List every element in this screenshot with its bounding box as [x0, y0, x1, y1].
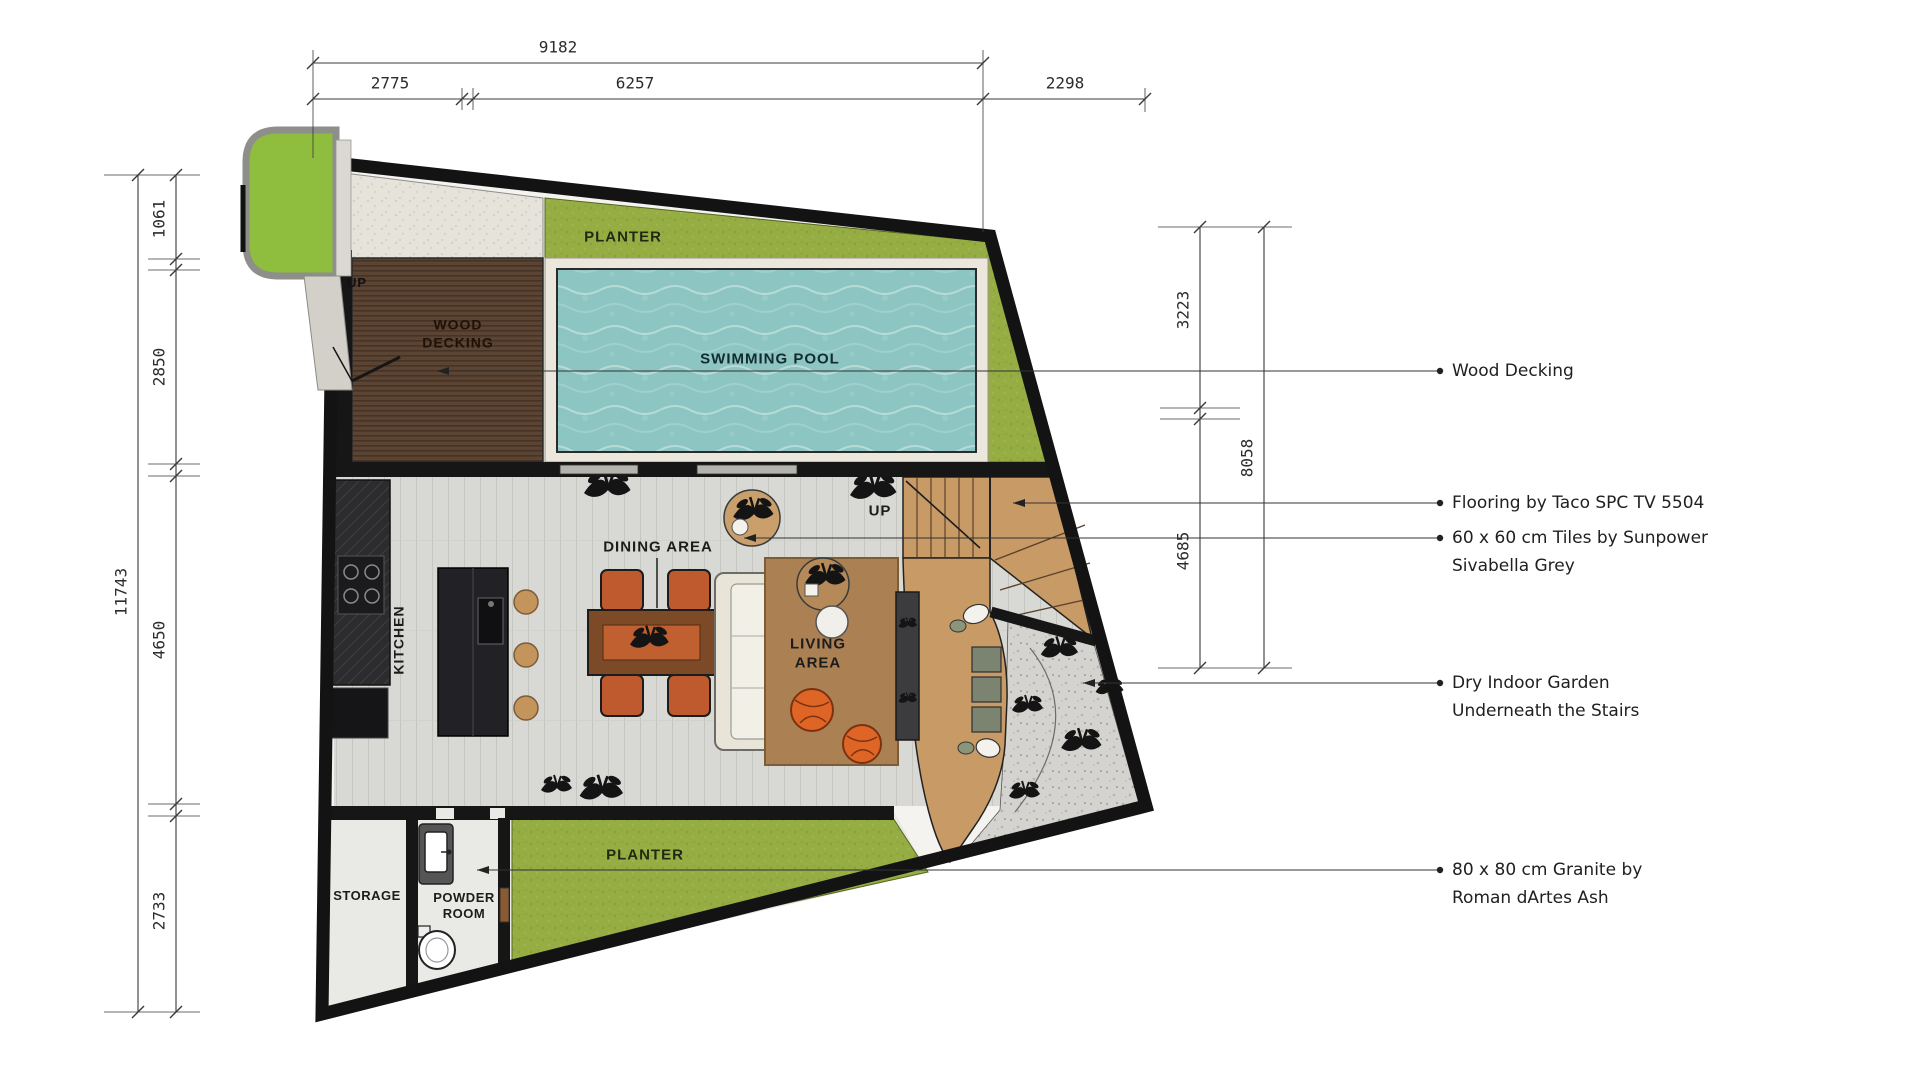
dim-right-seg2: 4685 — [1174, 532, 1193, 571]
dining-chair — [668, 675, 710, 716]
dim-top-seg1: 2775 — [371, 74, 410, 93]
dim-left-seg4: 2733 — [150, 892, 169, 931]
dim-right-overall: 8058 — [1238, 439, 1257, 478]
console-planter — [896, 592, 919, 740]
note-tiles-line1: 60 x 60 cm Tiles by Sunpower — [1452, 528, 1708, 548]
dim-top-overall: 9182 — [539, 38, 578, 57]
door-opening — [490, 808, 505, 819]
toilet — [419, 931, 455, 969]
dim-left-seg3: 4650 — [150, 621, 169, 660]
stove — [338, 556, 384, 614]
note-flooring: Flooring by Taco SPC TV 5504 — [1452, 493, 1704, 513]
dining-area-label: DINING AREA — [603, 539, 713, 558]
dim-left-seg1: 1061 — [150, 200, 169, 239]
dining-chair — [601, 675, 643, 716]
dim-top-seg2: 6257 — [616, 74, 655, 93]
swimming-pool-label: SWIMMING POOL — [700, 351, 840, 370]
bar-stool — [514, 590, 538, 614]
dining-chair — [668, 570, 710, 611]
planter-bottom-label: PLANTER — [606, 847, 684, 866]
powder-room-label: POWDER ROOM — [433, 890, 495, 923]
bar-stool — [514, 643, 538, 667]
door-opening — [436, 808, 454, 819]
planter-bottom-bed — [512, 818, 928, 964]
storage-label: STORAGE — [333, 888, 401, 904]
wood-decking-label: WOOD DECKING — [422, 317, 494, 352]
kitchen-label: KITCHEN — [390, 605, 408, 674]
dim-left-overall: 11743 — [112, 568, 131, 616]
note-granite-line1: 80 x 80 cm Granite by — [1452, 860, 1642, 880]
wood-decking-floor — [352, 258, 543, 462]
up-stairs-label: UP — [869, 503, 892, 522]
sliding-door — [697, 465, 797, 474]
dim-left-seg2: 2850 — [150, 348, 169, 387]
floor-plan: PLANTER SWIMMING POOL WOOD DECKING UP KI… — [0, 0, 1920, 1080]
coffee-table — [816, 606, 848, 638]
dim-top-seg3: 2298 — [1046, 74, 1085, 93]
note-garden-line2: Underneath the Stairs — [1452, 701, 1639, 721]
note-garden-line1: Dry Indoor Garden — [1452, 673, 1610, 693]
up-entry-label: UP — [347, 275, 367, 291]
note-granite-line2: Roman dArtes Ash — [1452, 888, 1609, 908]
dining-chair — [601, 570, 643, 611]
planter-top-label: PLANTER — [584, 229, 662, 248]
sliding-door — [560, 465, 638, 474]
pouf — [843, 725, 881, 763]
kitchen-island — [438, 568, 508, 736]
dim-right-seg1: 3223 — [1174, 291, 1193, 330]
door-leaf — [500, 888, 509, 922]
pouf — [791, 689, 833, 731]
bar-stool — [514, 696, 538, 720]
note-tiles-line2: Sivabella Grey — [1452, 556, 1575, 576]
living-area-label: LIVING AREA — [790, 635, 846, 673]
kitchen-counter — [332, 480, 390, 738]
fridge — [332, 688, 388, 738]
note-wood-decking: Wood Decking — [1452, 361, 1574, 381]
